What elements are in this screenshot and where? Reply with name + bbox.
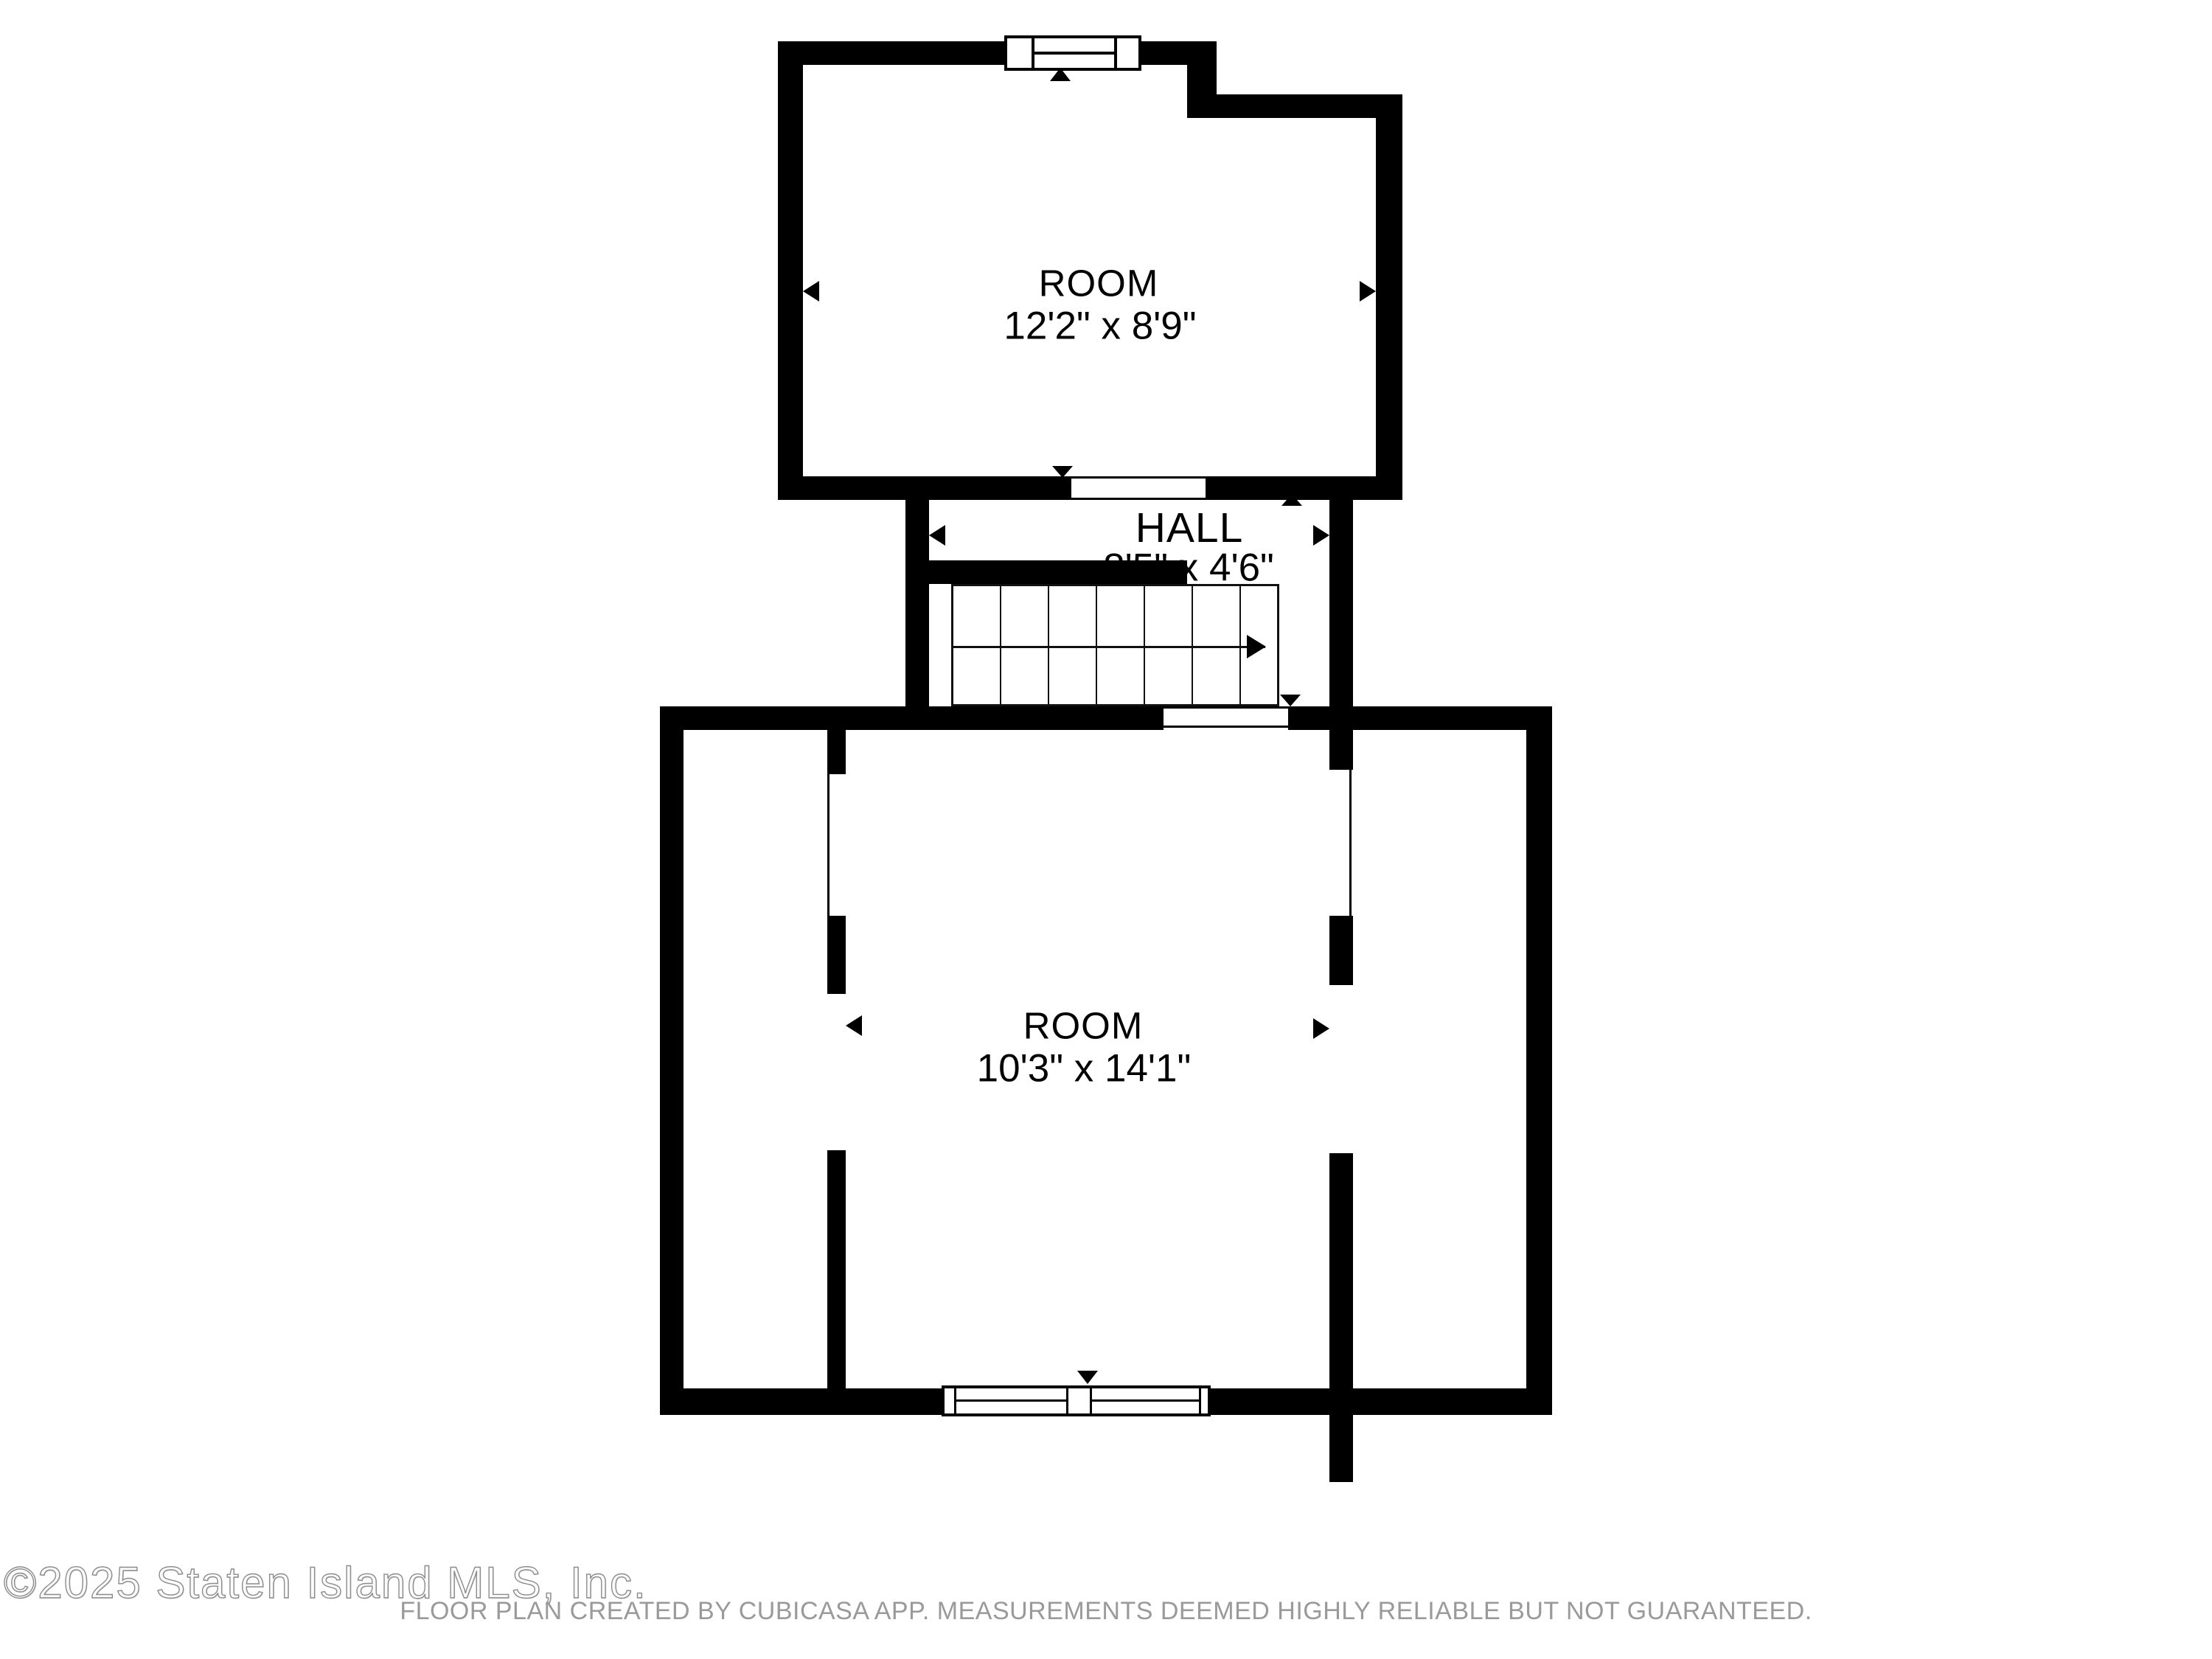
top-window-icon xyxy=(1004,35,1141,71)
hall-wall-right xyxy=(1329,500,1353,706)
bottom-window-icon xyxy=(942,1385,1211,1416)
bottom-room-wall-top-left xyxy=(660,706,1164,730)
top-window-direction-triangle-icon xyxy=(1050,68,1071,81)
hall-up-triangle-icon xyxy=(1281,494,1302,506)
bottom-room-wall-outer-right xyxy=(1526,706,1552,1415)
bottom-window-midline-right xyxy=(1092,1399,1199,1402)
cubicasa-disclaimer: FLOOR PLAN CREATED BY CUBICASA APP. MEAS… xyxy=(0,1597,2212,1626)
top-room-door-opening-line-lower xyxy=(1071,498,1206,500)
partition-right-segment-b xyxy=(1329,916,1353,985)
top-room-wall-right xyxy=(1376,94,1402,500)
bottom-window-center-div-left xyxy=(1066,1388,1068,1413)
bottom-room-name: ROOM xyxy=(1023,1004,1144,1048)
partition-left-segment-b xyxy=(827,916,846,994)
bottom-room-wall-top-right xyxy=(1288,706,1552,730)
top-room-wall-left xyxy=(778,41,803,500)
top-window-cap-right-divider xyxy=(1114,38,1117,68)
bottom-window-cap-right xyxy=(1199,1388,1201,1413)
bottom-room-wall-outer-left xyxy=(660,706,684,1415)
partition-right-segment-a xyxy=(1329,730,1353,770)
floor-plan-page: ROOM 12'2" x 8'9" HALL 8'5" x 4'6" xyxy=(0,0,2212,1659)
stair-direction-arrowhead-icon xyxy=(1247,635,1266,658)
partition-left-segment-a xyxy=(827,730,846,774)
stair-tread-line xyxy=(1048,586,1049,704)
top-room-door-opening-line-upper xyxy=(1071,476,1206,479)
bottom-window-midline-left xyxy=(956,1399,1066,1402)
hall-stair-top-wall xyxy=(929,560,1187,584)
hall-right-arrow-icon xyxy=(1313,525,1329,546)
hall-door-opening-line-upper xyxy=(1164,706,1288,709)
partition-right-opening-line xyxy=(1349,770,1352,916)
staircase-icon xyxy=(951,584,1279,706)
partition-right-segment-c xyxy=(1329,1153,1353,1388)
hall-wall-left xyxy=(905,500,929,706)
top-room-wall-bottom-right xyxy=(1206,476,1402,500)
stair-tread-line xyxy=(1096,586,1097,704)
bottom-room-left-arrow-icon xyxy=(846,1015,862,1036)
top-room-door-triangle-icon xyxy=(1052,466,1073,478)
stair-tread-line xyxy=(1144,586,1145,704)
bottom-window-direction-triangle-icon xyxy=(1077,1371,1098,1384)
bottom-room-right-arrow-icon xyxy=(1313,1018,1329,1039)
bottom-room-dimensions: 10'3" x 14'1" xyxy=(977,1046,1192,1091)
top-room-wall-bottom-left xyxy=(778,476,1071,500)
top-room-name: ROOM xyxy=(1039,262,1159,305)
top-room-wall-top xyxy=(778,41,1217,65)
hall-door-opening-line-lower xyxy=(1164,726,1288,728)
top-room-right-arrow-icon xyxy=(1360,281,1376,302)
stair-direction-line xyxy=(953,646,1265,648)
partition-left-opening-line xyxy=(827,774,829,916)
top-room-step-wall xyxy=(1187,94,1402,118)
top-room-left-arrow-icon xyxy=(803,281,819,302)
partition-left-segment-c xyxy=(827,1150,846,1388)
stair-tread-line xyxy=(1239,586,1241,704)
stair-tread-line xyxy=(1000,586,1001,704)
stair-tread-line xyxy=(1192,586,1193,704)
hall-door-triangle-icon xyxy=(1280,695,1301,706)
top-room-dimensions: 12'2" x 8'9" xyxy=(1004,304,1196,349)
partition-right-stub-below xyxy=(1329,1415,1353,1482)
hall-left-arrow-icon xyxy=(929,525,945,546)
top-window-midline xyxy=(1034,52,1114,55)
